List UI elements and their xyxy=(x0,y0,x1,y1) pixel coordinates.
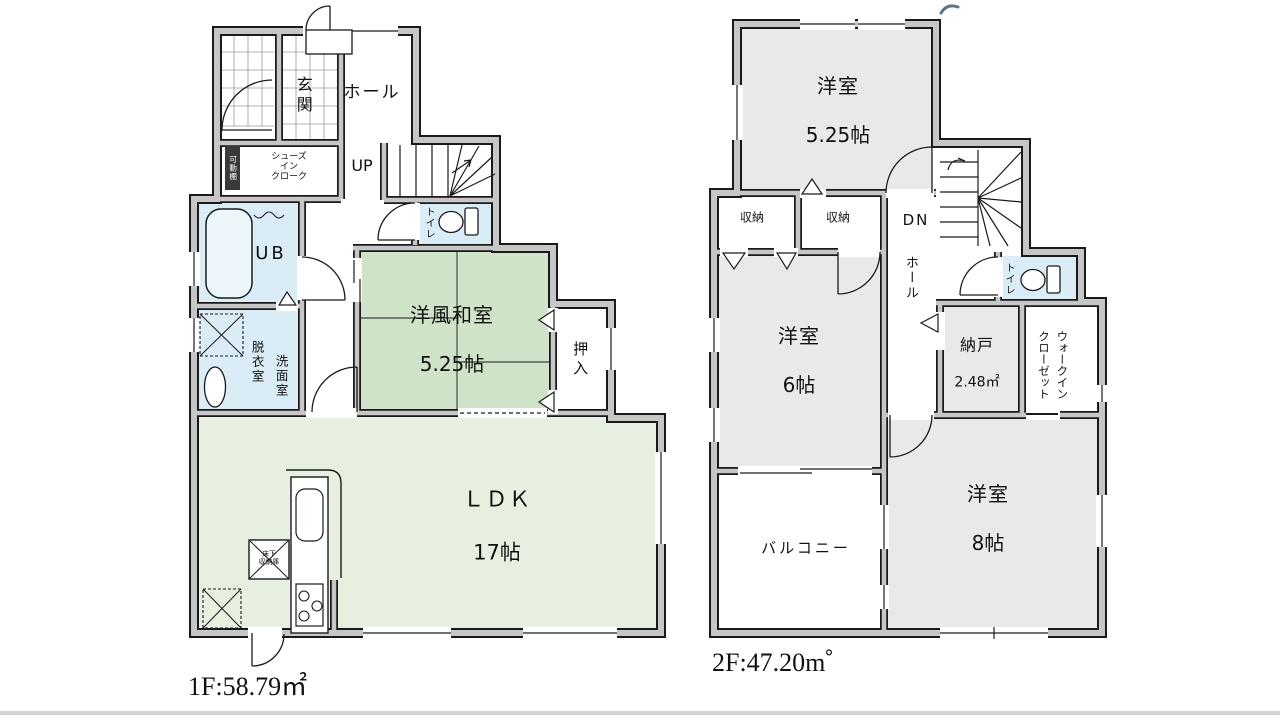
stairs-2f xyxy=(940,150,1021,246)
washitsu-fill xyxy=(361,252,549,409)
bottom-separator-line xyxy=(0,711,1280,715)
underfloor-storage-box xyxy=(249,540,289,579)
bedroom8-fill xyxy=(888,419,1098,629)
movable-shelf-box xyxy=(225,146,240,190)
top-right-artifact xyxy=(941,6,958,13)
bedroom525-fill xyxy=(741,28,932,189)
floorplan-image: 玄関 ホール UP シューズ イン クローク 可動棚 UB トイレ 脱衣室 洗面… xyxy=(0,0,1280,720)
porch-door-arc xyxy=(222,80,272,130)
room-fills xyxy=(198,28,1098,629)
bedroom6-fill xyxy=(718,256,880,467)
storeroom-fill xyxy=(944,307,1018,411)
washbasin-icon xyxy=(205,367,226,407)
stairs-1f xyxy=(400,145,495,198)
floorplan-drawing xyxy=(0,0,1280,720)
front-door xyxy=(306,30,352,54)
ldk-fill xyxy=(198,417,657,629)
